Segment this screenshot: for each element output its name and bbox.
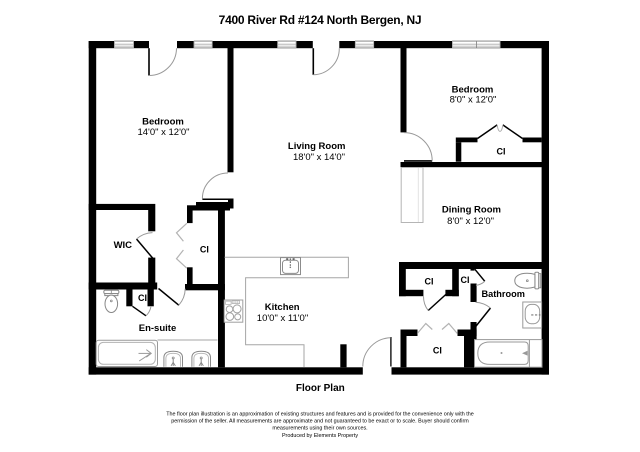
svg-text:8'0" x 12'0": 8'0" x 12'0" [447, 216, 494, 227]
svg-text:10'0" x 11'0": 10'0" x 11'0" [257, 313, 308, 324]
svg-text:Kitchen: Kitchen [265, 302, 300, 313]
svg-text:Floor Plan: Floor Plan [296, 383, 345, 394]
svg-text:18'0" x 14'0": 18'0" x 14'0" [293, 152, 345, 163]
svg-text:14'0" x 12'0": 14'0" x 12'0" [137, 127, 189, 138]
svg-text:Produced by Elements Property: Produced by Elements Property [282, 433, 358, 439]
svg-text:Bathroom: Bathroom [482, 289, 525, 299]
svg-text:measurements using their own s: measurements using their own sources. [272, 426, 367, 432]
svg-text:CI: CI [461, 275, 470, 285]
svg-text:7400 River Rd #124 North Berge: 7400 River Rd #124 North Bergen, NJ [219, 13, 422, 27]
svg-text:En-suite: En-suite [139, 323, 176, 334]
svg-text:permission of the seller. All: permission of the seller. All measuremen… [171, 419, 469, 425]
svg-text:8'0" x 12'0": 8'0" x 12'0" [450, 94, 497, 105]
svg-text:CI: CI [138, 293, 147, 303]
svg-text:Dining Room: Dining Room [442, 204, 501, 215]
svg-text:CI: CI [433, 346, 442, 356]
svg-text:WIC: WIC [114, 240, 133, 251]
svg-text:CI: CI [200, 244, 209, 254]
svg-text:The floor plan illustration is: The floor plan illustration is an approx… [166, 411, 473, 417]
svg-text:Living Room: Living Room [288, 141, 346, 152]
svg-text:CI: CI [497, 147, 506, 157]
svg-text:CI: CI [425, 277, 434, 287]
